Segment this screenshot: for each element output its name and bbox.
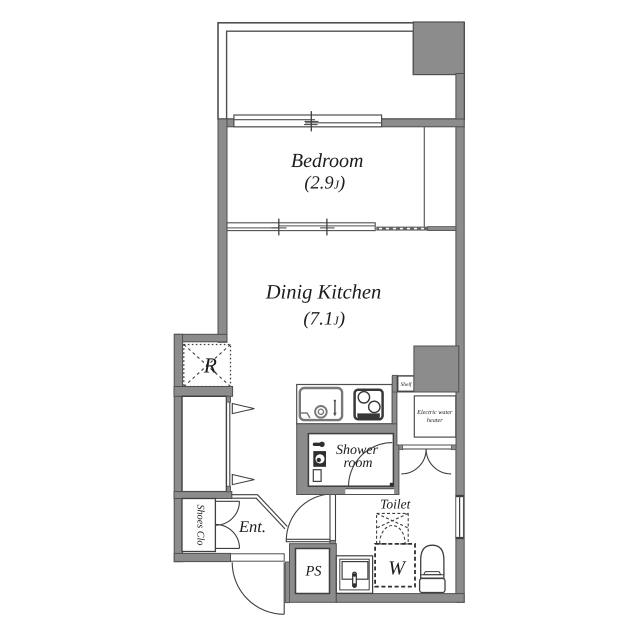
svg-text:Shelf: Shelf xyxy=(401,382,413,388)
svg-text:Electric water: Electric water xyxy=(416,409,453,416)
svg-text:Ent.: Ent. xyxy=(238,517,266,536)
svg-text:Shoes Clo: Shoes Clo xyxy=(194,504,205,545)
svg-text:Toilet: Toilet xyxy=(380,497,412,512)
svg-text:W: W xyxy=(388,557,407,579)
svg-text:R: R xyxy=(203,354,217,378)
svg-text:Bedroom: Bedroom xyxy=(291,150,364,172)
svg-text:Dinig Kitchen: Dinig Kitchen xyxy=(265,282,382,304)
svg-text:(2.9J): (2.9J) xyxy=(304,174,345,194)
svg-text:heater: heater xyxy=(427,417,443,424)
svg-text:(7.1J): (7.1J) xyxy=(303,309,345,330)
svg-text:PS: PS xyxy=(304,564,322,580)
